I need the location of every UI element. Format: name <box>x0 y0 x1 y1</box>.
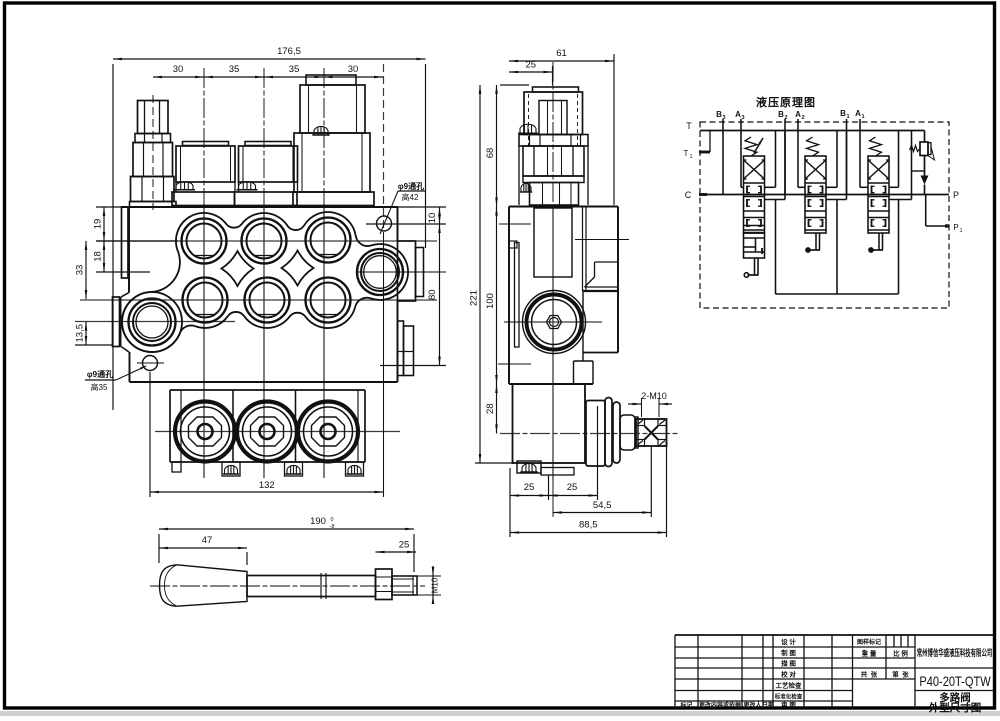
svg-text:A: A <box>795 110 801 119</box>
svg-text:88,5: 88,5 <box>579 520 598 531</box>
svg-text:B: B <box>778 110 784 119</box>
svg-text:A: A <box>855 109 861 118</box>
svg-text:30: 30 <box>348 64 359 75</box>
svg-text:校 对: 校 对 <box>781 670 796 679</box>
svg-text:18: 18 <box>93 251 104 262</box>
svg-text:176,5: 176,5 <box>277 46 301 57</box>
svg-text:1: 1 <box>959 228 962 234</box>
svg-text:68: 68 <box>485 148 496 159</box>
svg-text:高35: 高35 <box>91 382 108 392</box>
svg-text:常州博信华盛液压科技有限公司: 常州博信华盛液压科技有限公司 <box>917 646 992 658</box>
svg-text:更改人: 更改人 <box>743 701 762 709</box>
svg-text:比 例: 比 例 <box>893 649 908 658</box>
svg-text:日期: 日期 <box>762 701 774 709</box>
svg-text:19: 19 <box>93 219 104 230</box>
svg-text:2: 2 <box>801 115 804 121</box>
svg-text:1: 1 <box>689 154 692 160</box>
svg-text:T: T <box>686 121 692 131</box>
svg-text:审 图: 审 图 <box>781 700 796 709</box>
svg-text:-8: -8 <box>330 524 335 530</box>
svg-text:C: C <box>685 190 692 200</box>
svg-text:80: 80 <box>427 289 438 300</box>
svg-text:33: 33 <box>75 265 86 276</box>
svg-text:P: P <box>953 223 958 232</box>
svg-text:标准化检查: 标准化检查 <box>774 693 803 701</box>
svg-text:1: 1 <box>861 114 864 120</box>
svg-text:2-M10: 2-M10 <box>641 391 667 401</box>
svg-text:3: 3 <box>741 115 744 121</box>
svg-text:A: A <box>735 110 741 119</box>
svg-text:T: T <box>684 149 689 158</box>
svg-text:工艺检查: 工艺检查 <box>776 681 803 690</box>
svg-text:25: 25 <box>567 482 578 493</box>
svg-text:描 图: 描 图 <box>781 659 796 668</box>
svg-text:25: 25 <box>399 540 410 551</box>
svg-text:25: 25 <box>524 482 535 493</box>
svg-text:221: 221 <box>469 290 480 306</box>
svg-text:共 张: 共 张 <box>861 670 878 679</box>
svg-text:100: 100 <box>485 293 496 309</box>
svg-text:30: 30 <box>173 64 184 75</box>
svg-text:61: 61 <box>556 48 567 59</box>
svg-text:35: 35 <box>289 64 300 75</box>
svg-text:第 张: 第 张 <box>892 670 909 679</box>
svg-text:10: 10 <box>427 213 438 224</box>
svg-text:25: 25 <box>525 60 536 71</box>
svg-text:M10: M10 <box>431 577 440 593</box>
svg-text:P: P <box>953 190 959 200</box>
svg-text:重 量: 重 量 <box>862 649 877 658</box>
svg-text:液压原理图: 液压原理图 <box>756 95 816 109</box>
svg-text:P40-20T-QTW: P40-20T-QTW <box>919 674 991 689</box>
svg-text:13,5: 13,5 <box>75 324 86 343</box>
svg-text:标记: 标记 <box>679 701 692 709</box>
svg-text:高42: 高42 <box>402 192 419 202</box>
svg-text:B: B <box>840 109 846 118</box>
svg-text:28: 28 <box>485 403 496 414</box>
svg-text:0: 0 <box>330 517 333 523</box>
svg-text:φ9通孔: φ9通孔 <box>87 369 113 379</box>
svg-text:35: 35 <box>229 64 240 75</box>
svg-text:图样标记: 图样标记 <box>857 638 881 646</box>
svg-text:设 计: 设 计 <box>781 637 796 646</box>
svg-text:外型尺寸图: 外型尺寸图 <box>928 701 982 714</box>
svg-text:制 图: 制 图 <box>781 648 796 657</box>
svg-text:47: 47 <box>202 535 213 546</box>
svg-text:φ9通孔: φ9通孔 <box>398 181 424 191</box>
svg-text:B: B <box>716 110 722 119</box>
svg-text:更改内容或依据: 更改内容或依据 <box>699 701 741 709</box>
svg-text:190: 190 <box>310 516 326 527</box>
svg-text:54,5: 54,5 <box>593 500 612 511</box>
svg-text:132: 132 <box>259 480 275 491</box>
